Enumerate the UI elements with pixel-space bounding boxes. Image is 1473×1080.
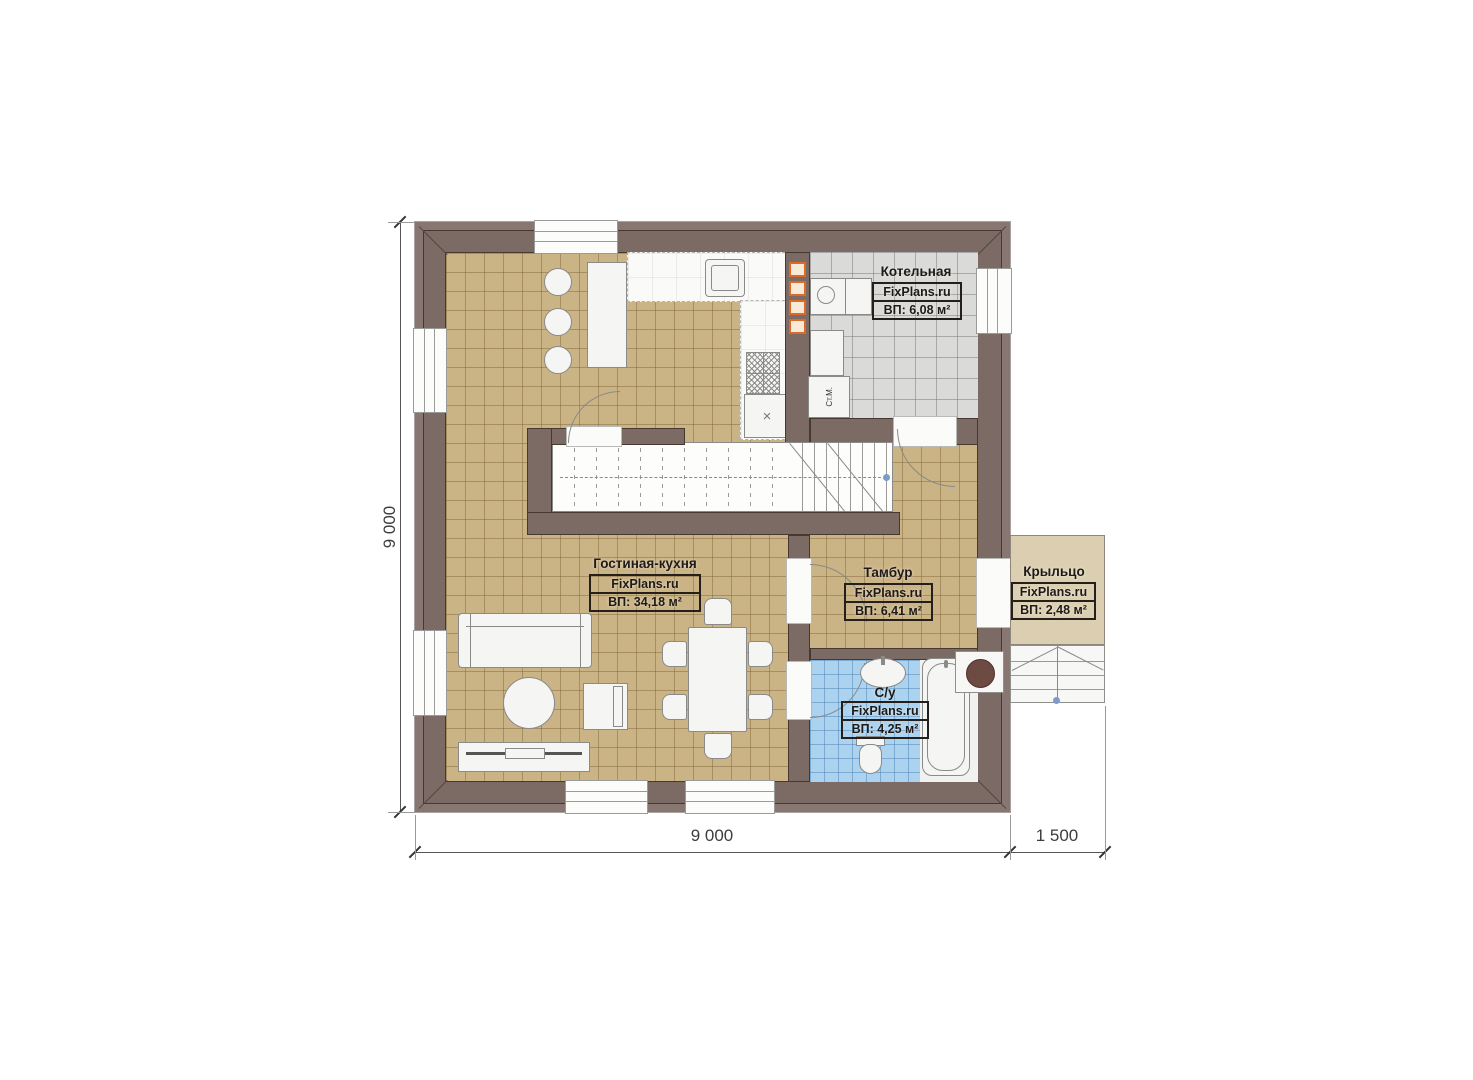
floor-plan-canvas: × Ст.М. xyxy=(0,0,1473,1080)
room-title-porch: Крыльцо xyxy=(1004,564,1104,579)
tambour-door xyxy=(786,558,812,624)
bar-counter xyxy=(587,262,627,368)
room-box-boiler: FixPlans.ru ВП: 6,08 м² xyxy=(872,282,962,320)
gas-boiler-divider xyxy=(845,279,846,314)
window-bottom-2 xyxy=(685,780,775,814)
dim-label-porch: 1 500 xyxy=(1012,826,1102,846)
bar-stool-2 xyxy=(544,308,572,336)
water-heater xyxy=(966,659,995,688)
bath-sink-tap xyxy=(881,656,885,665)
window-left-1 xyxy=(413,328,447,413)
dim-line-bottom xyxy=(415,852,1105,853)
dim-ext-left-top xyxy=(388,222,415,223)
sofa xyxy=(458,613,592,668)
dim-label-left: 9 000 xyxy=(380,497,400,557)
dining-chair-bottom xyxy=(704,733,732,759)
room-brand-porch: FixPlans.ru xyxy=(1013,584,1094,600)
porch-direction-dot xyxy=(1053,697,1060,704)
window-left-2 xyxy=(413,630,447,716)
tv-console xyxy=(505,748,545,759)
dining-table xyxy=(688,627,747,732)
bar-stool-1 xyxy=(544,268,572,296)
dining-chair-left-1 xyxy=(662,641,687,667)
bathroom-door xyxy=(786,661,812,720)
room-box-bathroom: FixPlans.ru ВП: 4,25 м² xyxy=(841,701,929,739)
room-area-boiler: ВП: 6,08 м² xyxy=(874,300,960,318)
vent-shaft-3 xyxy=(789,300,806,315)
vent-shaft-2 xyxy=(789,281,806,296)
dim-ext-bottom-mid xyxy=(1010,815,1011,860)
room-brand-bathroom: FixPlans.ru xyxy=(843,703,927,719)
room-brand-tambour: FixPlans.ru xyxy=(846,585,931,601)
kitchen-cabinet: × xyxy=(744,394,790,438)
room-area-living: ВП: 34,18 м² xyxy=(591,592,699,610)
boiler-unit xyxy=(810,330,844,376)
sofa-back-line xyxy=(466,626,584,627)
bathtub-faucet xyxy=(944,660,948,668)
dining-chair-right-1 xyxy=(748,641,773,667)
vent-shaft-4 xyxy=(789,319,806,334)
window-right-boiler xyxy=(976,268,1012,334)
dim-ext-bottom-left xyxy=(415,815,416,860)
dim-ext-bottom-right xyxy=(1105,706,1106,860)
porch-step-centerline xyxy=(1057,646,1058,701)
dim-ext-left-bottom xyxy=(388,812,415,813)
room-box-living: FixPlans.ru ВП: 34,18 м² xyxy=(589,574,701,612)
room-title-boiler: Котельная xyxy=(866,264,966,279)
window-top xyxy=(534,220,618,254)
dining-chair-top xyxy=(704,598,732,625)
room-box-porch: FixPlans.ru ВП: 2,48 м² xyxy=(1011,582,1096,620)
side-chair-back xyxy=(613,686,623,727)
room-area-porch: ВП: 2,48 м² xyxy=(1013,600,1094,618)
room-area-tambour: ВП: 6,41 м² xyxy=(846,601,931,619)
dim-label-bottom: 9 000 xyxy=(662,826,762,846)
room-brand-boiler: FixPlans.ru xyxy=(874,284,960,300)
room-title-bathroom: С/у xyxy=(835,685,935,700)
washing-machine-label: Ст.М. xyxy=(825,387,834,407)
stairs-centerline xyxy=(560,477,886,478)
room-title-tambour: Тамбур xyxy=(838,565,938,580)
sofa-arm-left xyxy=(470,614,471,667)
kitchen-sink-basin xyxy=(711,265,739,291)
washing-machine: Ст.М. xyxy=(808,376,850,418)
dining-chair-right-2 xyxy=(748,694,773,720)
sofa-arm-right xyxy=(580,614,581,667)
dining-chair-left-2 xyxy=(662,694,687,720)
room-title-living: Гостиная-кухня xyxy=(575,556,715,571)
room-box-tambour: FixPlans.ru ВП: 6,41 м² xyxy=(844,583,933,621)
room-area-bathroom: ВП: 4,25 м² xyxy=(843,719,927,737)
toilet-bowl xyxy=(859,744,882,774)
stairwell-bottom-wall xyxy=(527,512,900,535)
window-bottom-1 xyxy=(565,780,648,814)
dim-line-left xyxy=(400,222,401,812)
room-brand-living: FixPlans.ru xyxy=(591,576,699,592)
stove xyxy=(746,352,780,394)
bar-stool-3 xyxy=(544,346,572,374)
stairs-direction-dot xyxy=(883,474,890,481)
cabinet-x-mark: × xyxy=(763,409,772,424)
vent-shaft-1 xyxy=(789,262,806,277)
round-armchair xyxy=(503,677,555,729)
gas-boiler-burner xyxy=(817,286,835,304)
